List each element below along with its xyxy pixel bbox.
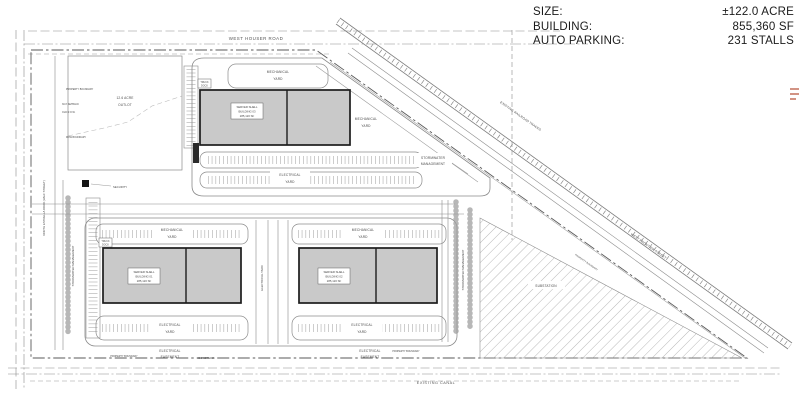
west-frontier-street-label: WEST FRONTIER STREET — [630, 232, 667, 260]
elec-yard-top-label-line2: YARD — [285, 180, 295, 184]
elec-yard-vertical-label: ELECTRICAL YARD — [260, 265, 264, 290]
mech-yard-se-label-line2: YARD — [358, 235, 368, 239]
easement-se-line1: ELECTRICAL — [359, 349, 380, 353]
mech-yard-se-label-line1: MECHANICAL — [352, 228, 374, 232]
guard-house — [82, 180, 89, 187]
north-estrella-road — [16, 30, 24, 392]
site-stats-legend: SIZE: ±122.0 ACRE BUILDING: 855,360 SF A… — [533, 5, 794, 49]
property-boundary-south-1: PROPERTY BOUNDARY — [110, 355, 138, 358]
lower-block: MECHANICAL YARD MECHANICAL YARD TRUCK DO… — [85, 218, 457, 346]
truck-dock-north-line2: DOCK — [201, 85, 208, 88]
elec-yard-top-label-line1: ELECTRICAL — [279, 173, 300, 177]
mech-yard-top-label-line2: YARD — [273, 77, 283, 81]
mech-yard-sw-label-line1: MECHANICAL — [161, 228, 183, 232]
building-02-label-line2: BUILDING 02 — [325, 275, 343, 279]
stormwater-vertical-label-west: STORMWATER MANAGEMENT — [71, 245, 75, 286]
property-boundary-diagonal: PROPERTY BOUNDARY — [574, 254, 598, 272]
outlot: 12.6 ACRE OUTLOT — [68, 56, 182, 170]
mech-yard-top-label-line1: MECHANICAL — [267, 70, 289, 74]
legend-row-size: SIZE: ±122.0 ACRE — [533, 5, 794, 20]
property-boundary-west: PROPERTY BOUNDARY — [66, 88, 94, 91]
security-checkpoint: SECURITY — [82, 180, 127, 189]
stormwater-upper-line2: MANAGEMENT — [421, 162, 445, 166]
building-01 — [103, 248, 241, 303]
electrical-easement: ELECTRICAL EASEMENT ELECTRICAL EASEMENT — [159, 349, 380, 359]
parking-column-north — [184, 66, 199, 163]
stormwater-vertical-label-east: STORMWATER MANAGEMENT — [461, 249, 465, 290]
left-service-strips: STORMWATER MANAGEMENT — [55, 56, 100, 350]
building-01-size: 285,120 SF — [137, 279, 152, 283]
site-plan-page: { "legend": { "rows": [ {"label": "SIZE:… — [0, 0, 800, 402]
substation-label: SUBSTATION — [535, 284, 557, 288]
legend-row-building: BUILDING: 855,360 SF — [533, 20, 794, 35]
elec-yard-sw-label-line2: YARD — [165, 330, 175, 334]
building-value: 855,360 SF — [733, 20, 794, 35]
building-02-label-line1: SERVER SHELL — [323, 270, 345, 274]
mech-yard-east-label-line1: MECHANICAL — [355, 117, 377, 121]
elec-yard-se-label-line1: ELECTRICAL — [351, 323, 372, 327]
west-houser-road-label: WEST HOUSER ROAD — [229, 36, 284, 41]
building-01-label-line2: BUILDING 01 — [135, 275, 153, 279]
railroad-tracks-label: EXISTING RAILROAD TRACKS — [499, 100, 542, 132]
red-edge-mark — [790, 89, 799, 99]
elec-yard-se-label-line2: YARD — [357, 330, 367, 334]
mech-yard-east-label-line2: YARD — [361, 124, 371, 128]
site-plan-drawing: SUBSTATION 12.6 ACRE OUTLOT STORMWATER M… — [0, 0, 800, 402]
setback-south: 30.0' SETBACK — [198, 357, 215, 360]
building-03-label-line1: SERVER SHELL — [236, 105, 258, 109]
elec-yard-sw-label-line1: ELECTRICAL — [159, 323, 180, 327]
building-03-size: 285,120 SF — [240, 114, 255, 118]
old-row-west: OLD R.O.W. — [62, 111, 76, 114]
size-value: ±122.0 ACRE — [722, 5, 794, 20]
right-stormwater-strip: STORMWATER MANAGEMENT — [442, 200, 470, 342]
building-02-size: 285,120 SF — [327, 279, 342, 283]
building-01-label-line1: SERVER SHELL — [133, 270, 155, 274]
existing-canal-lines — [8, 368, 782, 381]
north-estrella-road-label: NORTH ESTRELLA ROAD (HALF STREET) — [42, 180, 46, 235]
setback-west: 30.0' SETBACK — [62, 103, 79, 106]
mid-access-road — [32, 204, 464, 214]
building-03 — [200, 90, 350, 145]
top-block: MECHANICAL YARD SERVER SHELL BUILDING 03… — [192, 58, 490, 196]
small-structure — [193, 143, 199, 163]
easement-sw-line1: ELECTRICAL — [159, 349, 180, 353]
legend-row-parking: AUTO PARKING: 231 STALLS — [533, 34, 794, 49]
truck-dock-south-line2: DOCK — [102, 244, 109, 247]
security-label: SECURITY — [113, 185, 127, 189]
stormwater-upper-line1: STORMWATER — [421, 156, 446, 160]
existing-canal-label: EXISTING CANAL — [417, 381, 455, 385]
building-03-label-line2: BUILDING 03 — [238, 110, 256, 114]
outlot-label-line2: OUTLOT — [118, 103, 132, 107]
parking-value: 231 STALLS — [728, 34, 794, 49]
west-houser-road — [24, 31, 588, 54]
building-label: BUILDING: — [533, 20, 592, 35]
parking-label: AUTO PARKING: — [533, 34, 625, 49]
easement-sw-line2: EASEMENT — [161, 355, 180, 359]
easement-se-line2: EASEMENT — [361, 355, 380, 359]
outlot-label-line1: 12.6 ACRE — [116, 96, 133, 100]
row-boundary-west: ROW BOUNDARY — [66, 136, 86, 139]
property-boundary-south-2: PROPERTY BOUNDARY — [392, 350, 420, 353]
mech-yard-sw-label-line2: YARD — [167, 235, 177, 239]
size-label: SIZE: — [533, 5, 563, 20]
